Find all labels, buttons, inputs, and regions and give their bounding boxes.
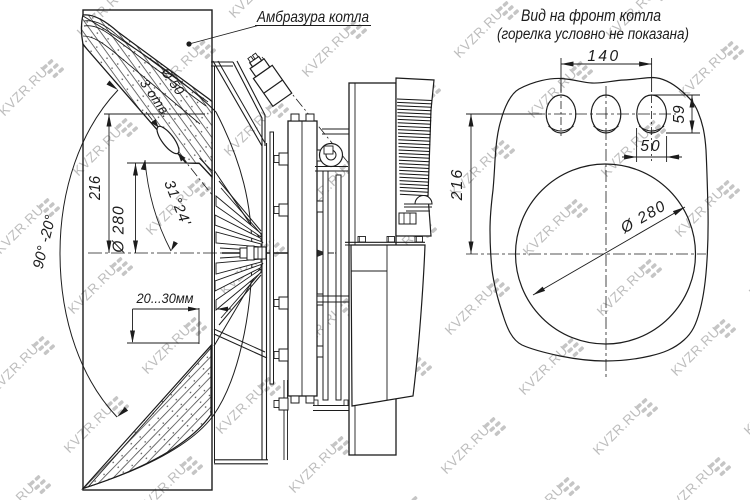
svg-text:140: 140 — [587, 48, 620, 65]
svg-text:216: 216 — [87, 176, 104, 201]
svg-text:20...30мм: 20...30мм — [136, 290, 194, 306]
svg-text:Вид на фронт котла: Вид на фронт котла — [521, 6, 661, 25]
svg-text:59: 59 — [671, 104, 688, 123]
svg-text:Ø 280: Ø 280 — [111, 205, 128, 253]
svg-text:50: 50 — [640, 138, 661, 155]
svg-text:(горелка условно не показана): (горелка условно не показана) — [497, 26, 689, 43]
svg-text:Амбразура котла: Амбразура котла — [256, 9, 369, 26]
svg-text:216: 216 — [449, 168, 466, 202]
